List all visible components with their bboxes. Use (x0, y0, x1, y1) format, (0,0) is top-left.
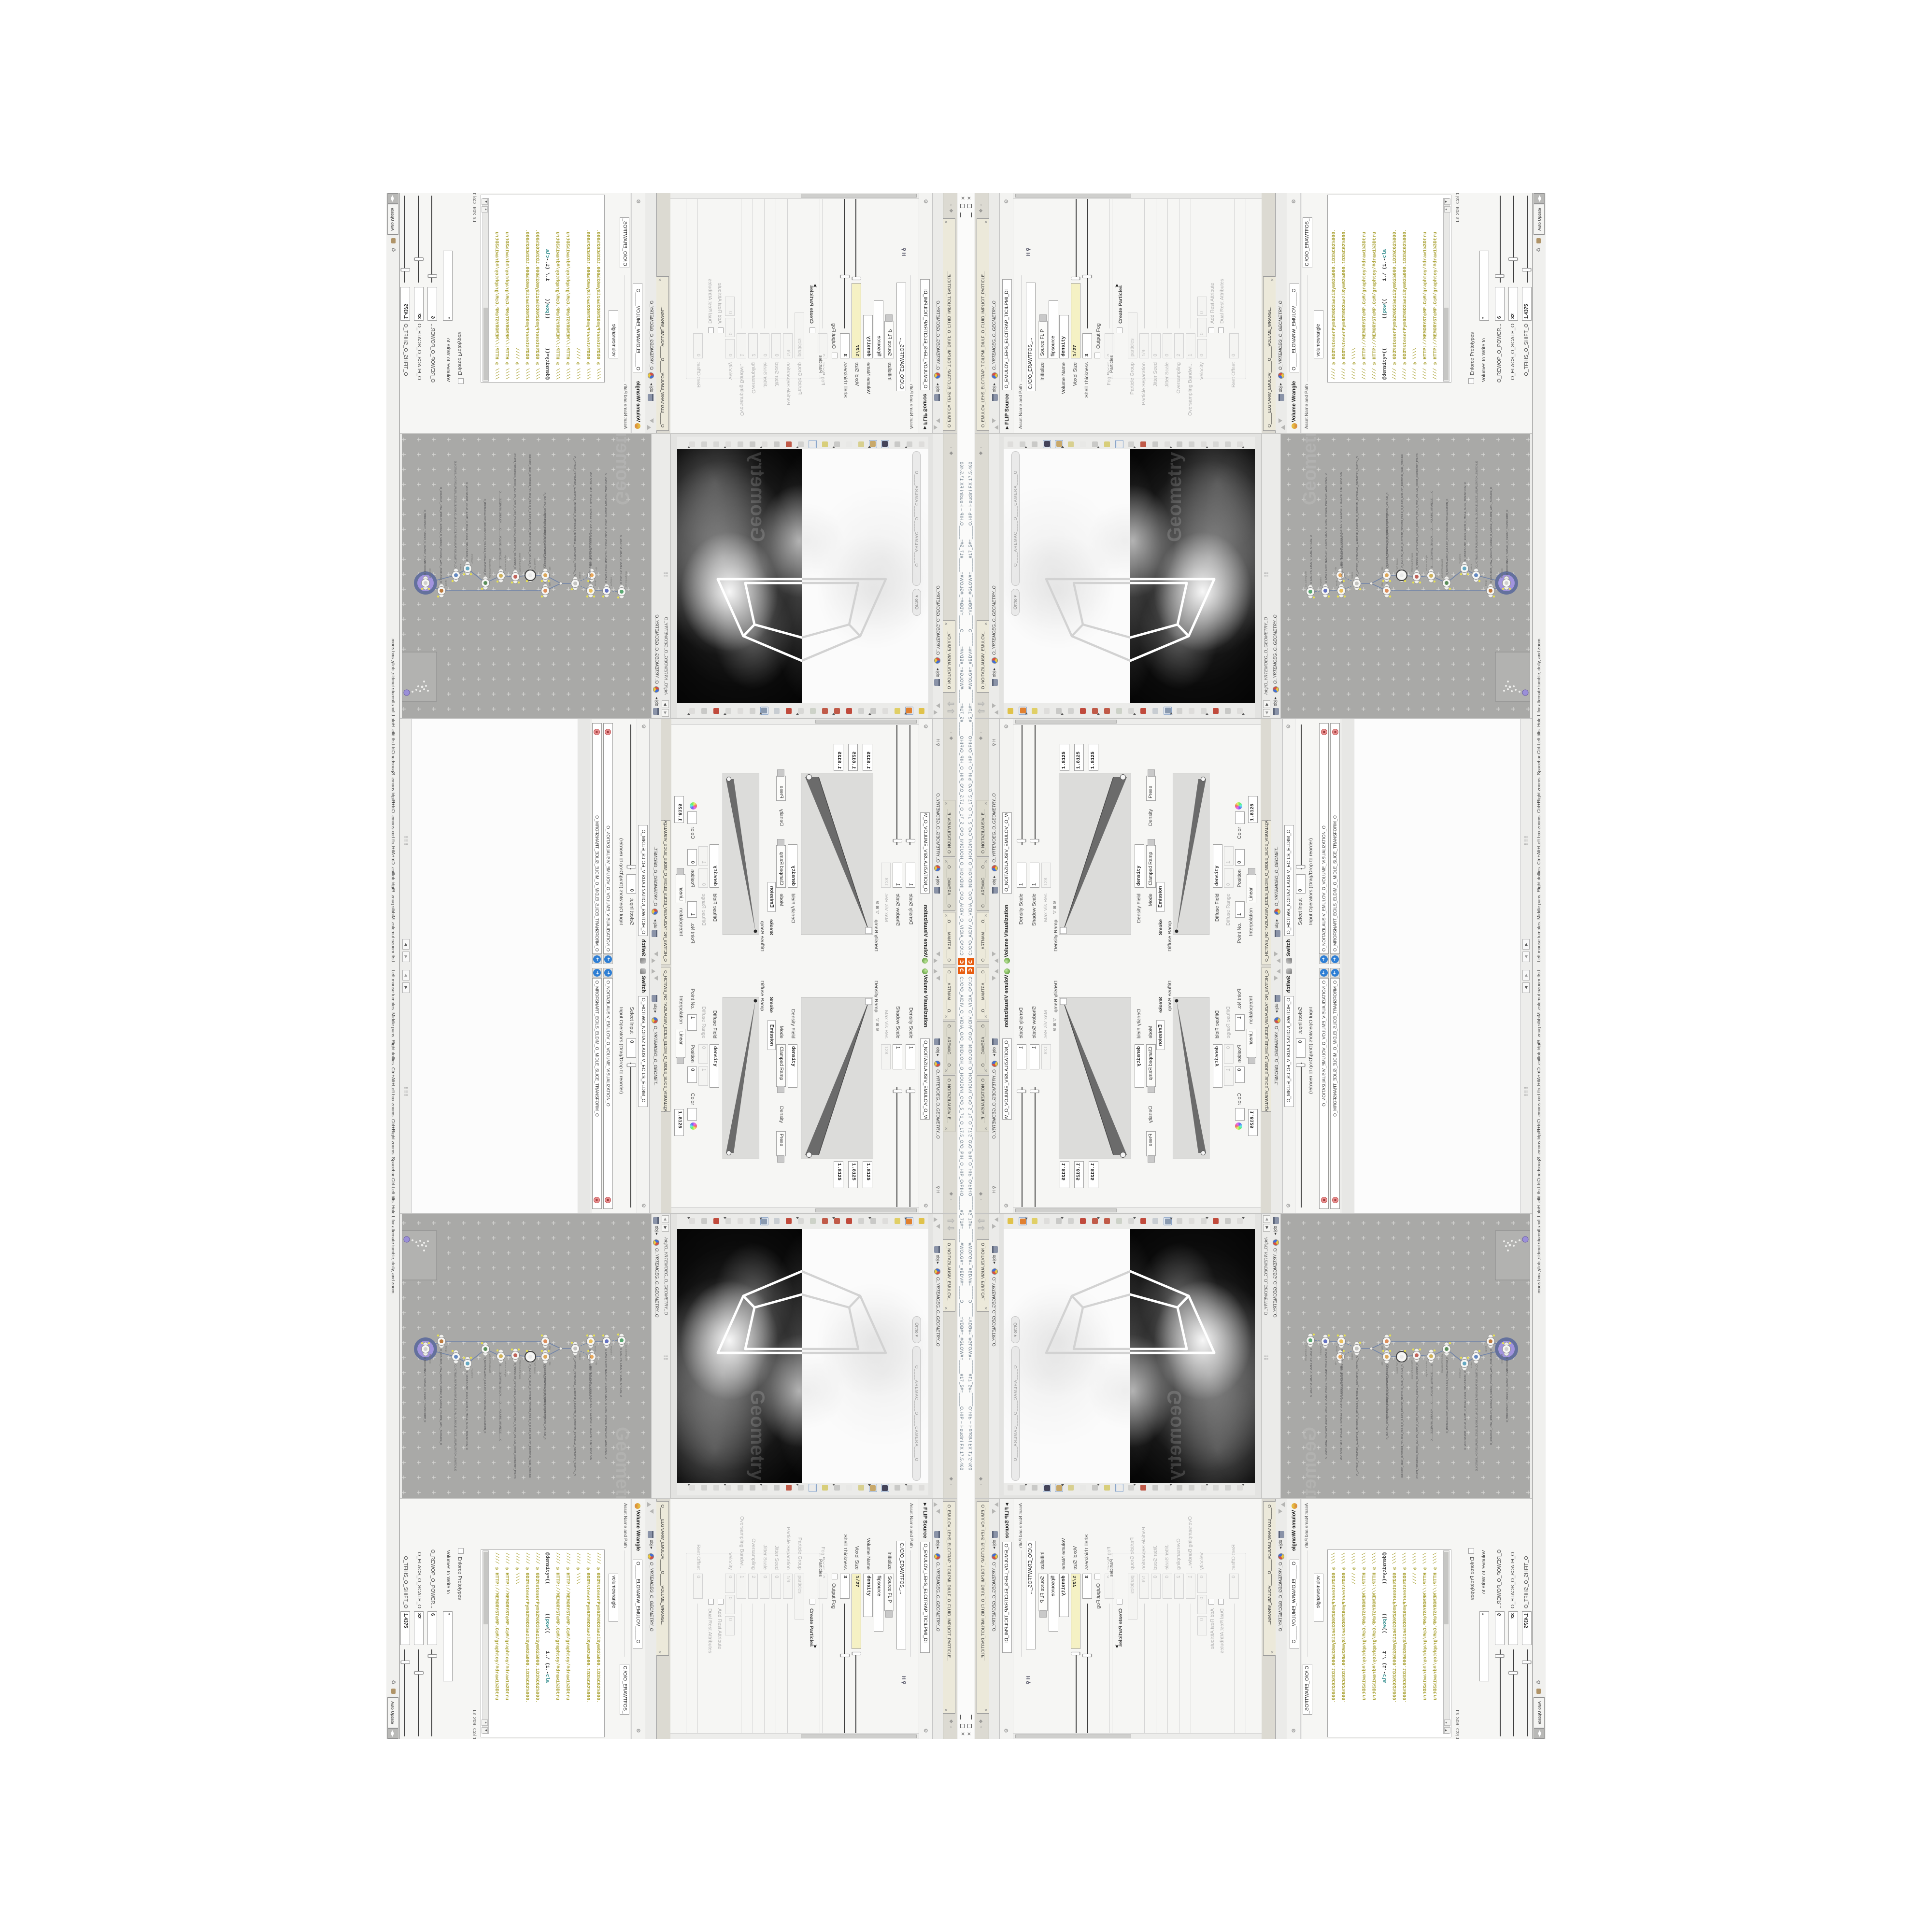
svg-text:File: File (1335, 567, 1337, 570)
svg-text:O_SNOGILOP_YRTEMOEG_MORF_EMULO: O_SNOGILOP_YRTEMOEG_MORF_EMULOV_BDV_O_VD… (1416, 1363, 1419, 1478)
svg-text:VDB from Polygons: VDB from Polygons (519, 553, 521, 572)
svg-text:Switch: Switch (1351, 572, 1353, 579)
svg-text:O_MROFSNART_TLUSER_O_RESULT_TR: O_MROFSNART_TLUSER_O_RESULT_TRANSFORM_O (1506, 1357, 1509, 1422)
svg-text:O_MO(SOV_DIS|DR)EG;BD/GEN/USO(: O_MO(SOV_DIS|DR)EG;BD/GEN/USO(O_D (1341, 533, 1344, 583)
svg-text:Volume Wrangle: Volume Wrangle (504, 555, 507, 571)
svg-text:O_MROFSNART_ECILS_ELDIM_O_MIDL: O_MROFSNART_ECILS_ELDIM_O_MIDLE_SLICE_TR… (1464, 1371, 1467, 1450)
svg-text:PolyWire: PolyWire (1320, 1346, 1322, 1355)
svg-text:O_HCTIWS_NOITAZILAUSIV_ECILS_E: O_HCTIWS_NOITAZILAUSIV_ECILS_ELDIM_O_MID… (1476, 1364, 1478, 1471)
svg-text:O_HCTIWS_NOITAZILAUSIV_ECILS_E: O_HCTIWS_NOITAZILAUSIV_ECILS_ELDIM_O_MID… (1476, 461, 1478, 568)
svg-text:an_CubeSphere: an_CubeSphere (625, 571, 627, 587)
svg-text:O_HCTIWS_YRTEMOEG_LANRETXE_LAN: O_HCTIWS_YRTEMOEG_LANRETXE_LANRETNI_O_IN… (573, 1356, 576, 1476)
svg-text:Clip: Clip (549, 582, 551, 586)
svg-text:O_MROFSNART_ECILS_ELDIM_O_MIDL: O_MROFSNART_ECILS_ELDIM_O_MIDLE_SLICE_TR… (465, 483, 468, 561)
svg-text:O_DIULF_BOALSRIN_EGBO_GEN_USFO: O_DIULF_BOALSRIN_EGBO_GEN_USFOLD_O (543, 1364, 546, 1420)
svg-text:O_MROFSNART_ECILS_ELDIM_O_MIDL: O_MROFSNART_ECILS_ELDIM_O_MIDLE_SLICE_TR… (465, 1371, 468, 1450)
svg-text:Transform: Transform (1459, 554, 1461, 564)
svg-text:Transform: Transform (471, 554, 473, 564)
svg-text:Switch: Switch (579, 1353, 581, 1360)
svg-text:File: File (595, 567, 597, 570)
svg-text:O_NOITAZILAUSIV_EMULOV_O/CO(VO: O_NOITAZILAUSIV_EMULOV_O/CO(VOLUME_VISUA… (483, 1357, 486, 1433)
svg-text:O_EMARFERIW_NOGYLOP_EREHPS_EBU: O_EMARFERIW_NOGYLOP_EREHPS_EBUC_O_CUBE_S… (1325, 473, 1328, 583)
svg-text:FLIP Source: FLIP Source (1396, 558, 1398, 570)
svg-text:VolumeVisualization: VolumeVisualization (1441, 1354, 1443, 1374)
svg-text:Merge: Merge (445, 1346, 447, 1352)
svg-text:O_SNOGILOP_YRTEMOEG_MORF_EMULO: O_SNOGILOP_YRTEMOEG_MORF_EMULOV_BDV_O_VD… (1416, 454, 1419, 569)
svg-text:PolyWire: PolyWire (1320, 577, 1322, 586)
svg-text:O_EMULOV_LEHS_ELCITRAP_TICILPM: O_EMULOV_LEHS_ELCITRAP_TICILPMI_DIULF_O_… (1401, 1364, 1404, 1478)
svg-text:O_ECAFRUS_HTIW_EMULOV_EGREM_O_: O_ECAFRUS_HTIW_EMULOV_EGREM_O_MERGE_VOLU… (1490, 487, 1493, 583)
svg-text:Merge: Merge (1485, 1346, 1487, 1352)
svg-text:O_EREHPS_EBUC_O_CUBE_SPHERE_O: O_EREHPS_EBUC_O_CUBE_SPHERE_O (1310, 1348, 1313, 1397)
svg-text:File: File (595, 1362, 597, 1365)
svg-text:O_SNOGILOP_YRTEMOEG_MORF_EMULO: O_SNOGILOP_YRTEMOEG_MORF_EMULOV_BDV_O_VD… (513, 454, 516, 569)
svg-text:Volume Wrangle: Volume Wrangle (504, 1361, 507, 1377)
svg-text:Transform: Transform (471, 1368, 473, 1378)
svg-text:O_DIULF_BOALSRIN_EGBO_GEN_USFO: O_DIULF_BOALSRIN_EGBO_GEN_USFOLD_O (1386, 1364, 1389, 1420)
svg-text:O_MO(SOV_DIS|DR)EG;BD/GEN/USO(: O_MO(SOV_DIS|DR)EG;BD/GEN/USO(O_D (1341, 1349, 1344, 1399)
svg-text:Switch: Switch (459, 1362, 462, 1368)
svg-text:O_NOITAZILAUSIV_EMULOV_O/CO(VO: O_NOITAZILAUSIV_EMULOV_O/CO(VOLUME_VISUA… (483, 499, 486, 575)
svg-text:Transform: Transform (1501, 568, 1503, 578)
svg-text:an_CubeSphere: an_CubeSphere (625, 1345, 627, 1361)
svg-text:Switch: Switch (1470, 1362, 1473, 1368)
svg-text:O_DIULF_BOALSRIN_EGBO_GEN_USFO: O_DIULF_BOALSRIN_EGBO_GEN_USFOLD_O (1386, 512, 1389, 568)
svg-text:Transform: Transform (429, 568, 431, 578)
svg-text:O_MROFSNART_ECILS_ELDIM_O_MIDL: O_MROFSNART_ECILS_ELDIM_O_MIDLE_SLICE_TR… (1464, 483, 1467, 561)
svg-text:O____ELGNARW_EMULOV____O____VO: O____ELGNARW_EMULOV____O____VOLUME_WRANG… (1431, 491, 1434, 568)
svg-text:O_EREHPS_EBUC_O_CUBE_SPHERE_O: O_EREHPS_EBUC_O_CUBE_SPHERE_O (619, 1348, 622, 1397)
svg-text:Volume Wrangle: Volume Wrangle (1425, 555, 1428, 571)
svg-text:O_ECAFRUS_HTIW_EMULOV_EGREM_O_: O_ECAFRUS_HTIW_EMULOV_EGREM_O_MERGE_VOLU… (439, 1349, 442, 1445)
svg-text:O_MROFSNART_TLUSER_O_RESULT_TR: O_MROFSNART_TLUSER_O_RESULT_TRANSFORM_O (423, 510, 426, 575)
svg-text:VolumeVisualization: VolumeVisualization (1441, 558, 1443, 578)
svg-text:O_EMARFERIW_NOGYLOP_EREHPS_EBU: O_EMARFERIW_NOGYLOP_EREHPS_EBUC_O_CUBE_S… (1325, 1349, 1328, 1459)
svg-text:O_ECAFRUS_HTIW_EMULOV_EGREM_O_: O_ECAFRUS_HTIW_EMULOV_EGREM_O_MERGE_VOLU… (1490, 1349, 1493, 1445)
svg-text:O_EMARFERIW_NOGYLOP_EREHPS_EBU: O_EMARFERIW_NOGYLOP_EREHPS_EBUC_O_CUBE_S… (604, 473, 607, 583)
svg-text:Transform: Transform (1459, 1368, 1461, 1378)
svg-text:O_NOITAZILAUSIV_EMULOV_O/CO(VO: O_NOITAZILAUSIV_EMULOV_O/CO(VOLUME_VISUA… (1446, 1357, 1449, 1433)
svg-text:FLIP Source: FLIP Source (534, 558, 536, 570)
svg-text:Clip: Clip (1381, 1346, 1383, 1350)
svg-text:O_ECAFRUS_HTIW_EMULOV_EGREM_O_: O_ECAFRUS_HTIW_EMULOV_EGREM_O_MERGE_VOLU… (439, 487, 442, 583)
svg-text:Geometry: Geometry (612, 434, 632, 505)
svg-text:FLIP Source: FLIP Source (1396, 1362, 1398, 1374)
svg-text:O_EMULOV_LEHS_ELCITRAP_TICILPM: O_EMULOV_LEHS_ELCITRAP_TICILPMI_DIULF_O_… (528, 454, 531, 568)
svg-text:O_MO(SOV_DIS|DR)EG;BD/GEN/USO(: O_MO(SOV_DIS|DR)EG;BD/GEN/USO(O_D (588, 533, 591, 583)
svg-text:O_HCTIWS_YRTEMOEG_LANRETXE_LAN: O_HCTIWS_YRTEMOEG_LANRETXE_LANRETNI_O_IN… (1356, 456, 1359, 576)
svg-text:Switch: Switch (459, 564, 462, 570)
svg-text:Switch: Switch (1470, 564, 1473, 570)
svg-text:O_DIULF_BOALSRIN_EGBO_GEN_USFO: O_DIULF_BOALSRIN_EGBO_GEN_USFOLD_O (543, 512, 546, 568)
svg-text:O_EMULOV_LEHS_ELCITRAP_TICILPM: O_EMULOV_LEHS_ELCITRAP_TICILPMI_DIULF_O_… (1401, 454, 1404, 568)
svg-text:O_MROFSNART_TLUSER_O_RESULT_TR: O_MROFSNART_TLUSER_O_RESULT_TRANSFORM_O (423, 1357, 426, 1422)
svg-text:O_MROFSNART_TLUSER_O_RESULT_TR: O_MROFSNART_TLUSER_O_RESULT_TRANSFORM_O (1506, 510, 1509, 575)
svg-text:VDB from Polygons: VDB from Polygons (519, 1360, 521, 1379)
svg-text:VolumeVisualization: VolumeVisualization (489, 1354, 491, 1374)
svg-text:O_EREHPS_EBUC_O_CUBE_SPHERE_O: O_EREHPS_EBUC_O_CUBE_SPHERE_O (619, 535, 622, 584)
svg-text:an_CubeSphere: an_CubeSphere (1305, 571, 1307, 587)
svg-text:O_HCTIWS_NOITAZILAUSIV_ECILS_E: O_HCTIWS_NOITAZILAUSIV_ECILS_ELDIM_O_MID… (454, 1364, 456, 1471)
svg-text:Merge: Merge (1485, 580, 1487, 586)
svg-text:VDB from Polygons: VDB from Polygons (1411, 553, 1413, 572)
svg-text:PolyWire: PolyWire (610, 577, 612, 586)
svg-text:Clip: Clip (1381, 567, 1383, 570)
svg-text:O_EMULOV_LEHS_ELCITRAP_TICILPM: O_EMULOV_LEHS_ELCITRAP_TICILPMI_DIULF_O_… (528, 1364, 531, 1478)
svg-text:Transform: Transform (1501, 1354, 1503, 1364)
svg-text:Geometry: Geometry (1300, 1427, 1320, 1498)
svg-text:VDB from Polygons: VDB from Polygons (1411, 1360, 1413, 1379)
svg-text:Clip: Clip (1381, 582, 1383, 586)
svg-text:O_SNOGILOP_YRTEMOEG_MORF_EMULO: O_SNOGILOP_YRTEMOEG_MORF_EMULOV_BDV_O_VD… (513, 1363, 516, 1478)
svg-text:PolyWire: PolyWire (610, 1346, 612, 1355)
svg-text:O_EMARFERIW_NOGYLOP_EREHPS_EBU: O_EMARFERIW_NOGYLOP_EREHPS_EBUC_O_CUBE_S… (604, 1349, 607, 1459)
svg-text:O_EREHPS_EBUC_O_CUBE_SPHERE_O: O_EREHPS_EBUC_O_CUBE_SPHERE_O (1310, 535, 1313, 584)
svg-text:Booth: Booth (594, 1346, 597, 1352)
svg-text:Transform: Transform (429, 1354, 431, 1364)
svg-text:Geometry: Geometry (1300, 434, 1320, 505)
svg-text:Clip: Clip (549, 1346, 551, 1350)
svg-text:O_HCTIWS_NOITAZILAUSIV_ECILS_E: O_HCTIWS_NOITAZILAUSIV_ECILS_ELDIM_O_MID… (454, 461, 456, 568)
svg-text:O_NOITAZILAUSIV_EMULOV_O/CO(VO: O_NOITAZILAUSIV_EMULOV_O/CO(VOLUME_VISUA… (1446, 499, 1449, 575)
svg-text:Volume Wrangle: Volume Wrangle (1425, 1361, 1428, 1377)
svg-text:Booth: Booth (1335, 580, 1338, 586)
svg-text:Clip: Clip (549, 567, 551, 570)
svg-text:O_HCTIWS_YRTEMOEG_LANRETXE_LAN: O_HCTIWS_YRTEMOEG_LANRETXE_LANRETNI_O_IN… (1356, 1356, 1359, 1476)
svg-text:Switch: Switch (1351, 1353, 1353, 1360)
svg-text:FLIP Source: FLIP Source (534, 1362, 536, 1374)
svg-text:Booth: Booth (594, 580, 597, 586)
svg-text:Merge: Merge (445, 580, 447, 586)
svg-text:Clip: Clip (549, 1362, 551, 1365)
svg-text:Booth: Booth (1335, 1346, 1338, 1352)
svg-text:O____ELGNARW_EMULOV____O____VO: O____ELGNARW_EMULOV____O____VOLUME_WRANG… (498, 1364, 501, 1441)
svg-text:Geometry: Geometry (612, 1427, 632, 1498)
svg-text:an_CubeSphere: an_CubeSphere (1305, 1345, 1307, 1361)
svg-text:O_MO(SOV_DIS|DR)EG;BD/GEN/USO(: O_MO(SOV_DIS|DR)EG;BD/GEN/USO(O_D (588, 1349, 591, 1399)
svg-text:O____ELGNARW_EMULOV____O____VO: O____ELGNARW_EMULOV____O____VOLUME_WRANG… (498, 491, 501, 568)
svg-text:Switch: Switch (579, 572, 581, 579)
svg-text:O_HCTIWS_YRTEMOEG_LANRETXE_LAN: O_HCTIWS_YRTEMOEG_LANRETXE_LANRETNI_O_IN… (573, 456, 576, 576)
svg-text:O____ELGNARW_EMULOV____O____VO: O____ELGNARW_EMULOV____O____VOLUME_WRANG… (1431, 1364, 1434, 1441)
svg-text:File: File (1335, 1362, 1337, 1365)
svg-text:VolumeVisualization: VolumeVisualization (489, 558, 491, 578)
svg-text:Clip: Clip (1381, 1362, 1383, 1365)
